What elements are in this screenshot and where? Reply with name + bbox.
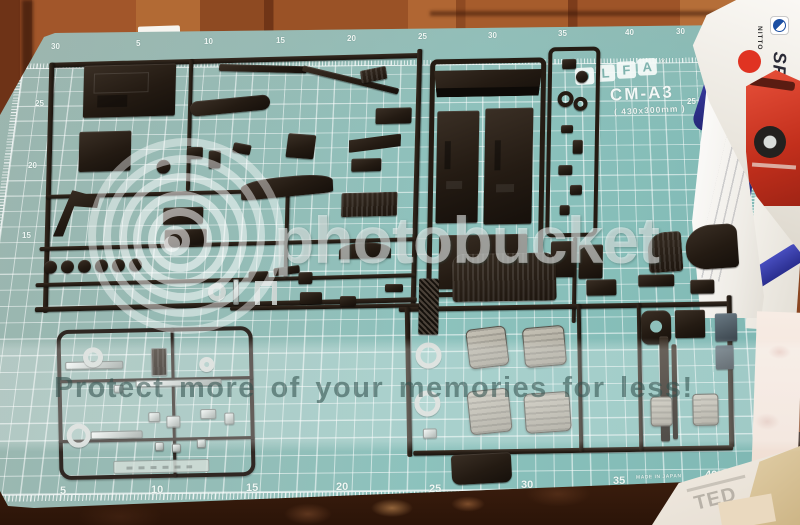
part-panel [675,310,705,339]
photo-model-kit-sprues-on-cutting-mat: 30 5 10 15 20 25 30 35 40 30 25 20 15 25… [0,0,800,525]
part-pad [351,158,381,172]
ruler-number: 25 [687,97,696,106]
sprue-label-plate [113,459,209,474]
part-plate-small [285,133,316,159]
ruler-number: 35 [558,29,567,38]
part-fender-cluster [646,223,741,277]
part-bracket [375,107,411,124]
ruler-number: 30 [488,31,497,40]
part-small [562,59,576,69]
part-small [570,185,582,195]
box-brand-label: NITTO [756,26,763,50]
runner [43,63,55,313]
part-coil-spring [360,66,388,84]
part-curved-fender [684,223,739,271]
box-red-dot [738,50,761,73]
ruler-number: 20 [347,34,356,43]
ruler-number: 20 [336,481,348,493]
part-cross-brace [349,134,401,153]
part-small [561,125,573,133]
photobucket-wordmark: photobucket [274,202,659,278]
car-chrome-trim [752,162,796,169]
ruler-number: 15 [276,36,285,45]
part-small [573,140,583,154]
part-exhaust-pipe [219,64,307,73]
part-detail [494,140,501,170]
nitto-logo [770,16,789,35]
part-muffler [190,94,271,117]
logo-center-dot [164,236,180,252]
part-detail [434,86,542,97]
part-small [558,165,572,175]
part-detail [93,72,149,93]
part-detail [97,95,127,108]
ruler-number: 40 [625,28,634,37]
part-detail [446,181,462,189]
car-window-line [749,76,796,91]
car-wheel [754,126,786,158]
registered-mark: ® [660,58,666,65]
part-hub [61,260,74,273]
ruler-number: 10 [204,37,213,46]
ruler-number: 5 [136,39,140,48]
part-detail [496,184,514,192]
part-battery-box [83,63,176,117]
part-small [690,280,714,294]
part-bottom-bench [451,452,512,485]
nitto-logo-circle [773,19,786,32]
part-hole [650,320,662,332]
ruler-number: 15 [22,231,31,240]
mat-model-label: CM-A3 [610,82,675,105]
brand-letter: A [637,58,657,76]
ruler-number: 30 [676,27,685,36]
part-hub [44,261,57,274]
brand-letter: F [616,61,636,79]
ruler-number: 30 [51,42,60,51]
promo-banner-text: Protect more of your memories for less! [54,372,694,405]
part-small [300,292,322,304]
part-hub [78,260,91,273]
part-small [340,296,356,306]
ruler-number: 25 [418,32,427,41]
part-grille [418,278,439,334]
part-small [586,279,616,296]
box-car-art [746,70,800,206]
part-detail [444,141,450,169]
